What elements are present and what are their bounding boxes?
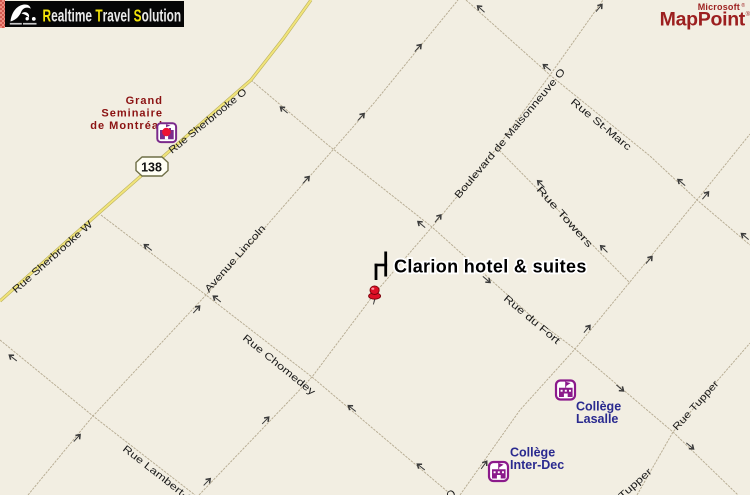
svg-text:de Montréal: de Montréal bbox=[90, 120, 163, 132]
svg-text:®: ® bbox=[746, 11, 750, 18]
svg-text:Rue Sherbrooke W: Rue Sherbrooke W bbox=[11, 219, 96, 296]
svg-text:Rue Tupper: Rue Tupper bbox=[597, 466, 656, 495]
svg-text:MapPoint: MapPoint bbox=[660, 9, 746, 31]
svg-text:Grand: Grand bbox=[126, 95, 163, 107]
svg-text:Rue St-Marc: Rue St-Marc bbox=[568, 97, 633, 153]
svg-text:Realtime Travel Solution: Realtime Travel Solution bbox=[43, 6, 182, 26]
svg-text:Rue Towers: Rue Towers bbox=[534, 185, 594, 250]
svg-text:Rue Sherbrooke O: Rue Sherbrooke O bbox=[167, 87, 249, 157]
svg-text:Rue Chomedey: Rue Chomedey bbox=[240, 333, 317, 398]
svg-text:Rue Tupper: Rue Tupper bbox=[671, 378, 722, 433]
svg-text:Lasalle: Lasalle bbox=[576, 412, 618, 426]
svg-text:Rue Lambert-Closse: Rue Lambert-Closse bbox=[120, 444, 220, 495]
svg-text:Seminaire: Seminaire bbox=[101, 108, 163, 120]
svg-text:Avenue Lincoln: Avenue Lincoln bbox=[203, 223, 268, 295]
svg-text:Rue du Fort: Rue du Fort bbox=[501, 293, 562, 347]
svg-text:O: O bbox=[444, 487, 459, 495]
svg-text:Inter-Dec: Inter-Dec bbox=[510, 458, 564, 472]
svg-text:Boulevard de Maisonneuve O: Boulevard de Maisonneuve O bbox=[453, 66, 568, 200]
svg-text:138: 138 bbox=[141, 161, 162, 175]
svg-text:Clarion hotel & suites: Clarion hotel & suites bbox=[394, 257, 587, 277]
